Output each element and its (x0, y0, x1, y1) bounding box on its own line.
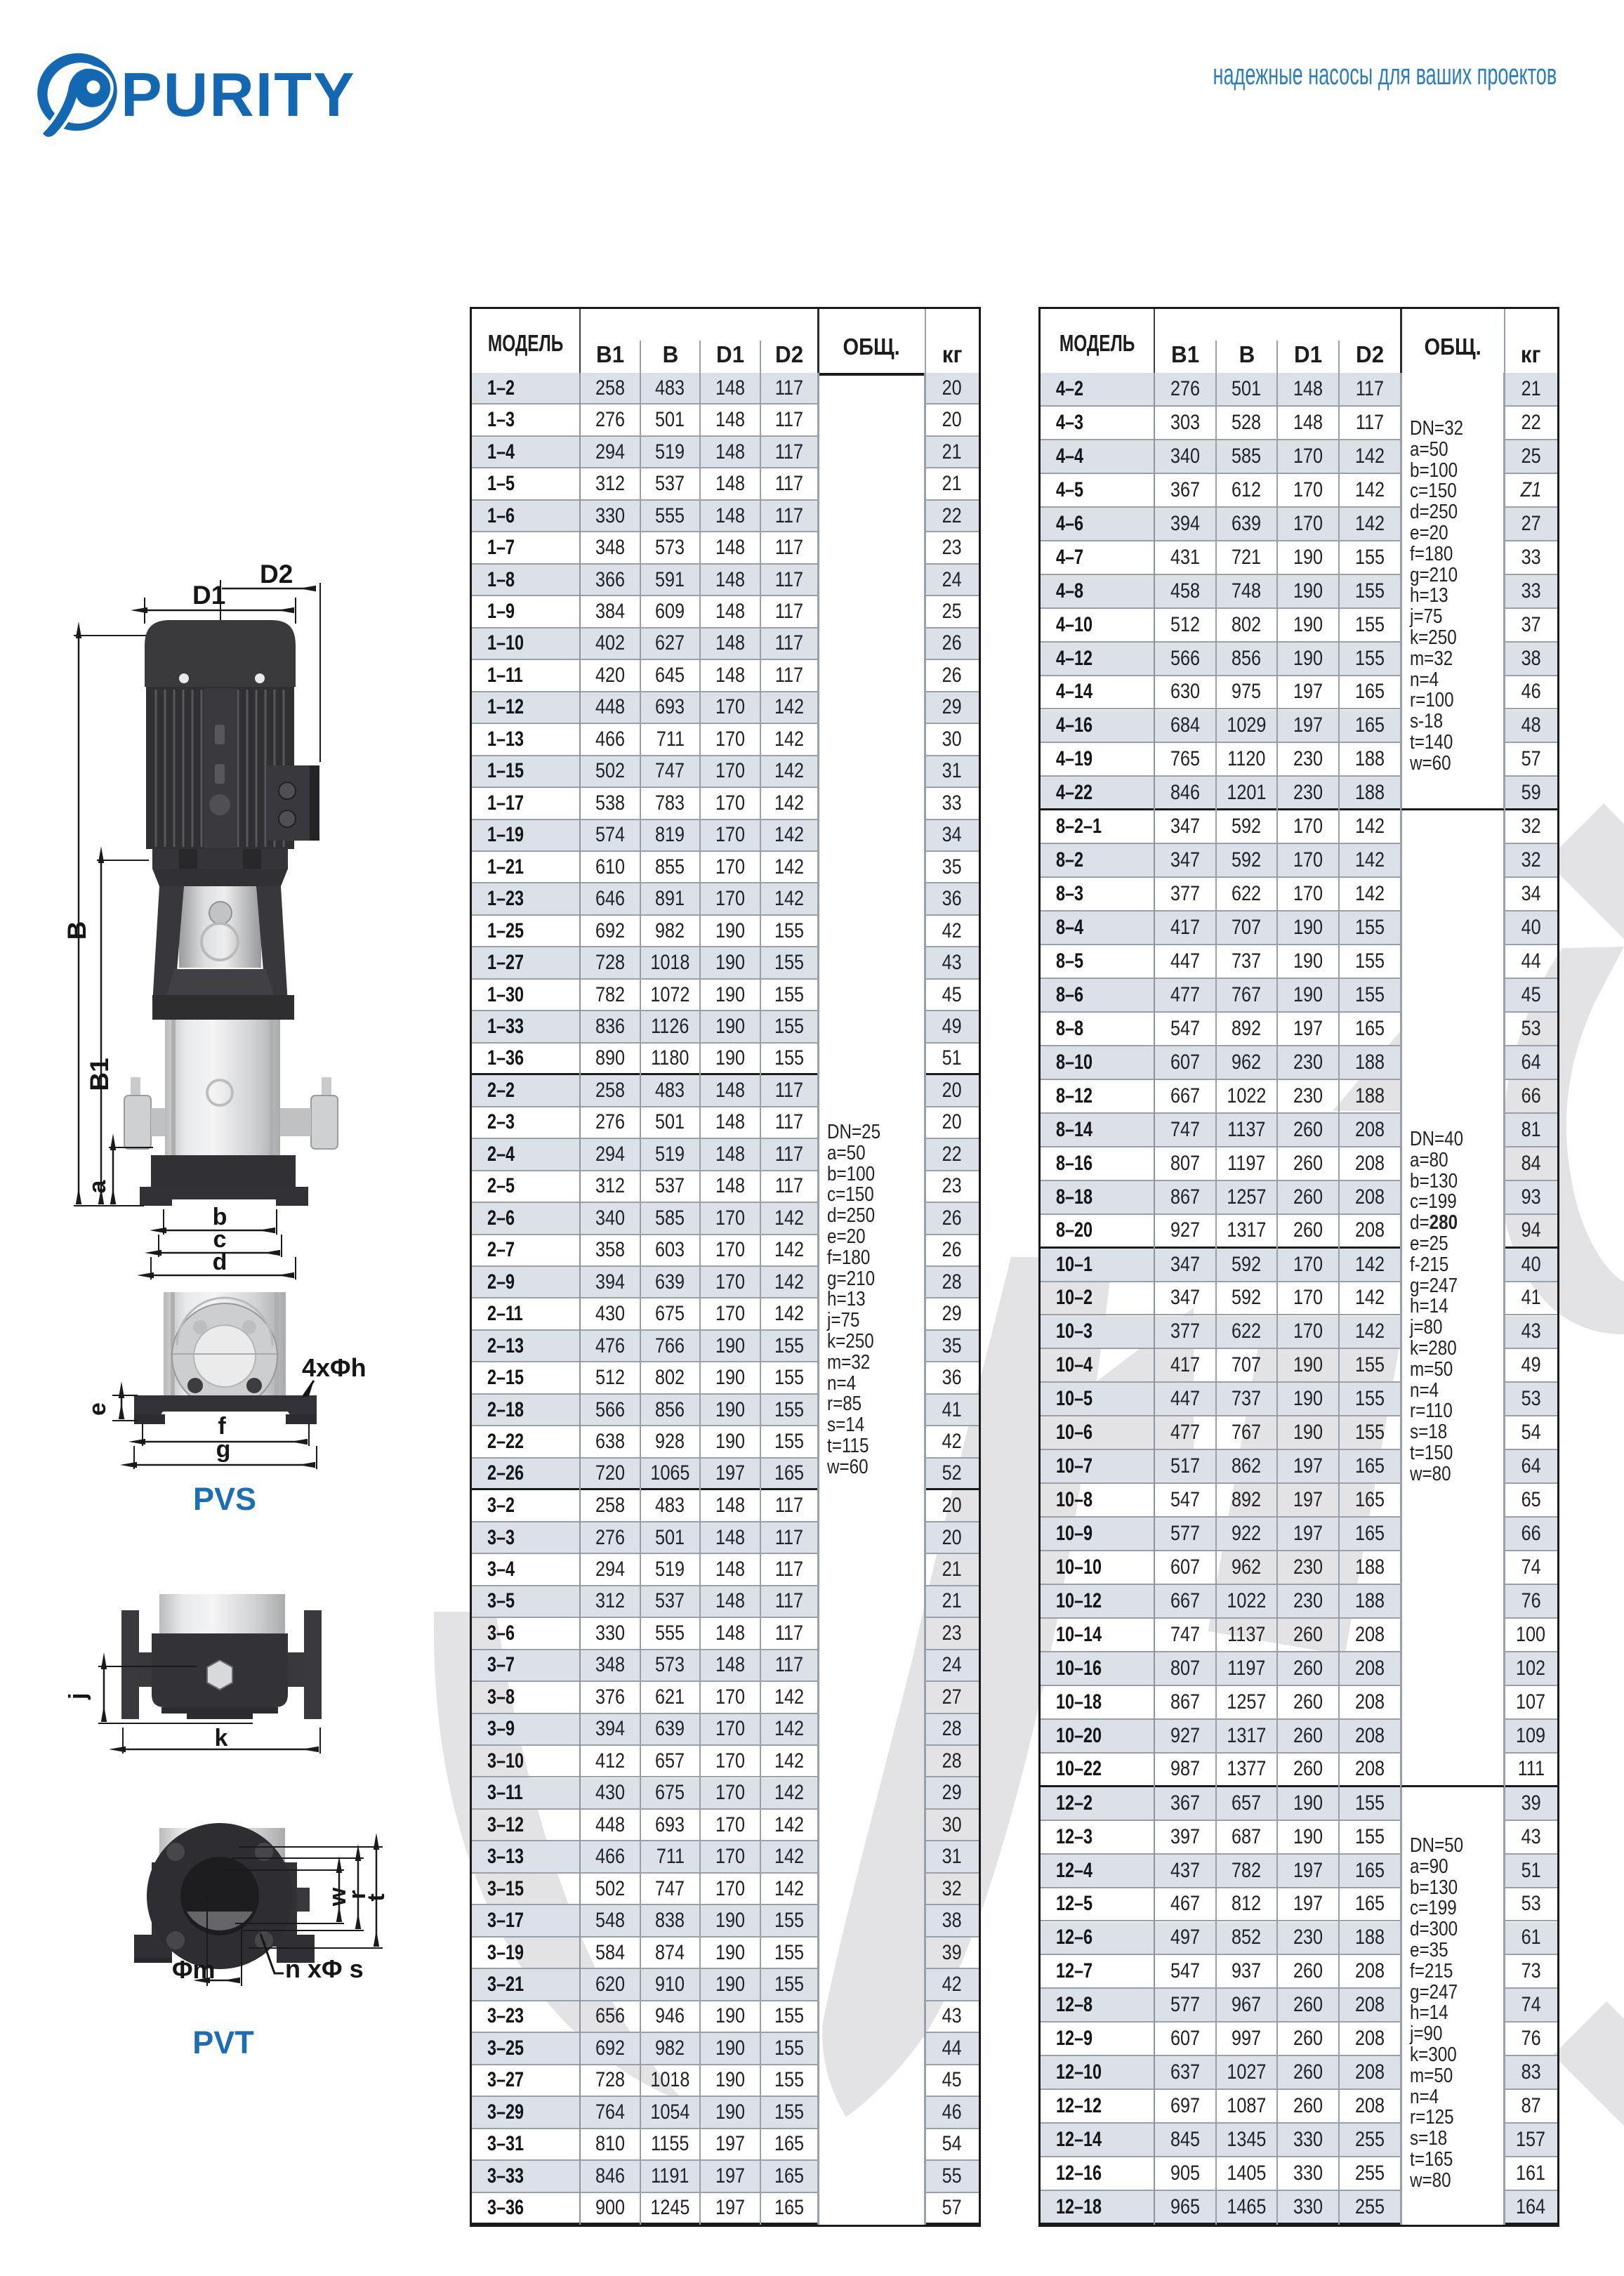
svg-text:B1: B1 (85, 1058, 114, 1091)
svg-text:B: B (62, 921, 91, 940)
svg-text:PVS: PVS (193, 1481, 256, 1517)
svg-text:n xΦ s: n xΦ s (285, 1954, 364, 1983)
svg-text:w: w (324, 1887, 351, 1907)
svg-text:Φm: Φm (172, 1955, 216, 1984)
svg-text:g: g (216, 1436, 231, 1463)
svg-text:D2: D2 (260, 560, 293, 588)
svg-text:k: k (215, 1725, 228, 1751)
svg-text:a: a (84, 1179, 111, 1193)
svg-text:e: e (84, 1402, 111, 1416)
svg-text:4xΦh: 4xΦh (302, 1353, 367, 1382)
svg-text:D1: D1 (192, 581, 225, 610)
svg-text:PVT: PVT (192, 2025, 254, 2060)
svg-text:d: d (213, 1249, 227, 1275)
svg-text:j: j (65, 1693, 91, 1700)
